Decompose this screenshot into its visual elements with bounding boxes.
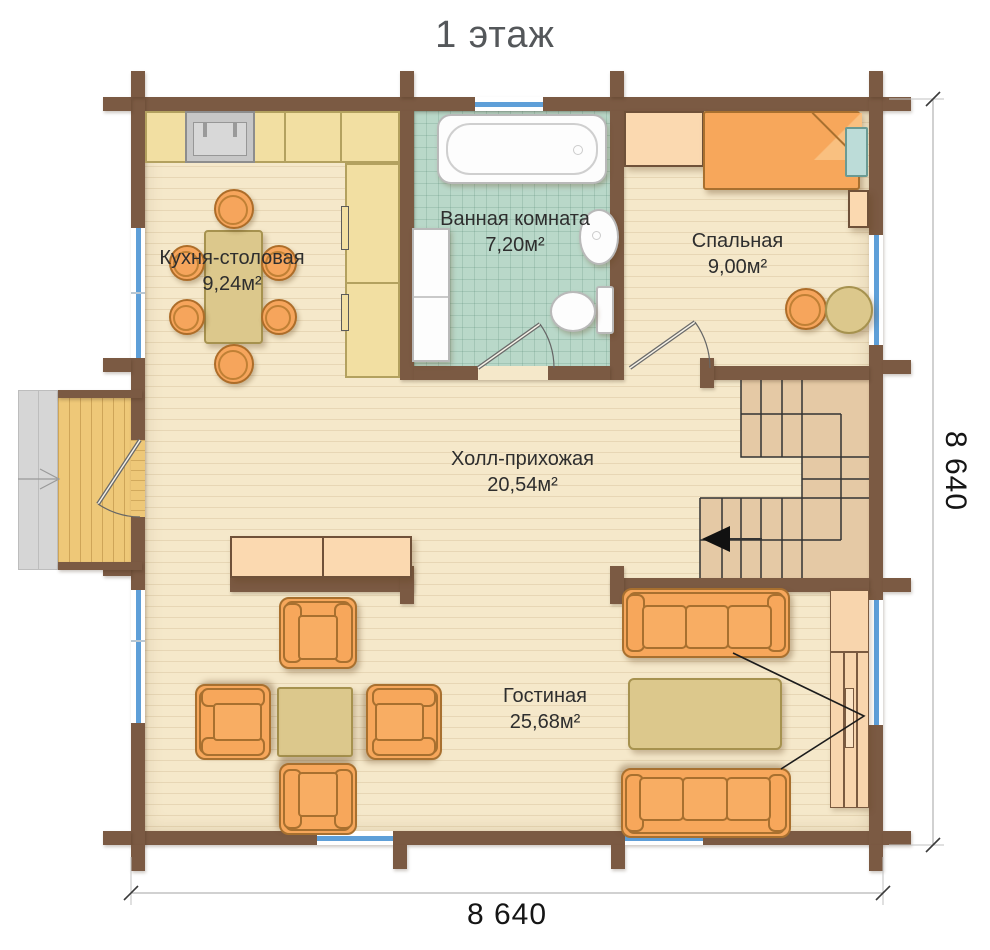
- room-name: Кухня-столовая: [159, 247, 304, 269]
- room-label-living: Гостиная 25,68м²: [440, 683, 650, 735]
- dimension-label-bottom: 8 640: [407, 898, 607, 932]
- room-area: 25,68м²: [510, 711, 580, 733]
- room-label-bedroom: Спальная 9,00м²: [645, 228, 830, 280]
- room-name: Ванная комната: [440, 208, 590, 230]
- room-name: Холл-прихожая: [451, 448, 594, 470]
- room-name: Гостиная: [503, 685, 587, 707]
- room-label-bathroom: Ванная комната 7,20м²: [420, 206, 610, 258]
- fireplace-arrow: [733, 653, 864, 769]
- dimension-label-right: 8 640: [932, 391, 972, 551]
- room-area: 20,54м²: [487, 474, 557, 496]
- room-area: 9,00м²: [708, 256, 767, 278]
- room-label-hall: Холл-прихожая 20,54м²: [410, 446, 635, 498]
- floor-plan: 1 этаж Кухня-столовая 9,24м² Ванная комн…: [0, 0, 990, 950]
- room-area: 7,20м²: [485, 234, 544, 256]
- room-area: 9,24м²: [202, 273, 261, 295]
- page-title: 1 этаж: [0, 14, 990, 57]
- room-name: Спальная: [692, 230, 783, 252]
- room-label-kitchen: Кухня-столовая 9,24м²: [127, 245, 337, 297]
